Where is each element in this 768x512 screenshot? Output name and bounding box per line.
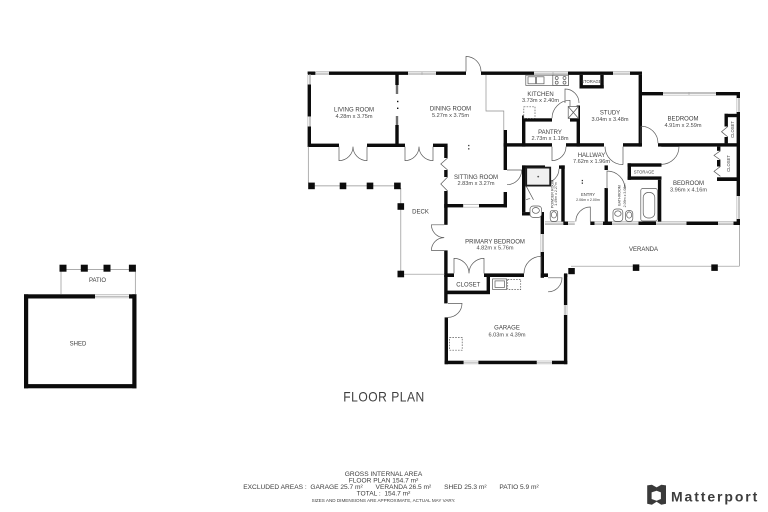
svg-text:STORAGE: STORAGE [634, 170, 655, 175]
svg-text:3.96m x 4.16m: 3.96m x 4.16m [670, 187, 707, 193]
svg-text:PATIO: PATIO [89, 278, 106, 284]
svg-text:STUDY: STUDY [600, 111, 620, 117]
svg-text:1.49m x 2.27m: 1.49m x 2.27m [554, 182, 558, 206]
svg-text:CLOSET: CLOSET [730, 121, 735, 138]
svg-text:PRIMARY BEDROOM: PRIMARY BEDROOM [465, 239, 525, 245]
svg-text:SHED: SHED [70, 342, 87, 348]
svg-text:2.09m x 3.03m: 2.09m x 3.03m [623, 184, 627, 208]
svg-text:SIZES AND DIMENSIONS ARE APPRO: SIZES AND DIMENSIONS ARE APPROXIMATE, AC… [312, 498, 456, 503]
svg-text:SITTING ROOM: SITTING ROOM [454, 175, 498, 181]
svg-text:DECK: DECK [412, 210, 429, 216]
svg-text:4.91m x 2.59m: 4.91m x 2.59m [665, 123, 702, 129]
svg-text:Matterport: Matterport [671, 489, 759, 505]
svg-text:6.03m x 4.39m: 6.03m x 4.39m [489, 333, 526, 339]
svg-text:BEDROOM: BEDROOM [667, 117, 698, 123]
svg-text:4.82m x 5.76m: 4.82m x 5.76m [477, 246, 514, 252]
svg-text:HALLWAY: HALLWAY [578, 153, 606, 159]
svg-text:2.06m x 2.00m: 2.06m x 2.00m [576, 198, 600, 202]
svg-text:VERANDA: VERANDA [629, 247, 658, 253]
svg-text:DINING ROOM: DINING ROOM [430, 107, 471, 113]
svg-text:3.73m x 2.40m: 3.73m x 2.40m [522, 98, 559, 104]
svg-text:PANTRY: PANTRY [538, 130, 562, 136]
svg-text:BATHROOM: BATHROOM [618, 185, 622, 206]
svg-text:4.28m x 3.75m: 4.28m x 3.75m [336, 114, 373, 120]
svg-text:FLOOR PLAN: FLOOR PLAN [343, 389, 424, 405]
svg-text:2.73m x 1.18m: 2.73m x 1.18m [532, 136, 569, 142]
svg-text:CLOSET: CLOSET [726, 155, 731, 172]
svg-text:ENTRY: ENTRY [581, 192, 595, 197]
svg-text:KITCHEN: KITCHEN [527, 92, 553, 98]
svg-text:CLOSET: CLOSET [456, 283, 480, 289]
svg-text:3.04m x 3.48m: 3.04m x 3.48m [592, 117, 629, 123]
svg-text:BEDROOM: BEDROOM [673, 181, 704, 187]
svg-text:LIVING ROOM: LIVING ROOM [334, 108, 374, 114]
svg-text:GARAGE: GARAGE [494, 326, 520, 332]
svg-text:2.83m x 3.27m: 2.83m x 3.27m [458, 181, 495, 187]
svg-text:STORAGE: STORAGE [581, 79, 602, 84]
svg-text:5.27m x 3.75m: 5.27m x 3.75m [432, 113, 469, 119]
svg-text:TOTAL : 154.7 m²: TOTAL : 154.7 m² [357, 491, 412, 498]
svg-text:7.62m x 1.96m: 7.62m x 1.96m [573, 159, 610, 165]
